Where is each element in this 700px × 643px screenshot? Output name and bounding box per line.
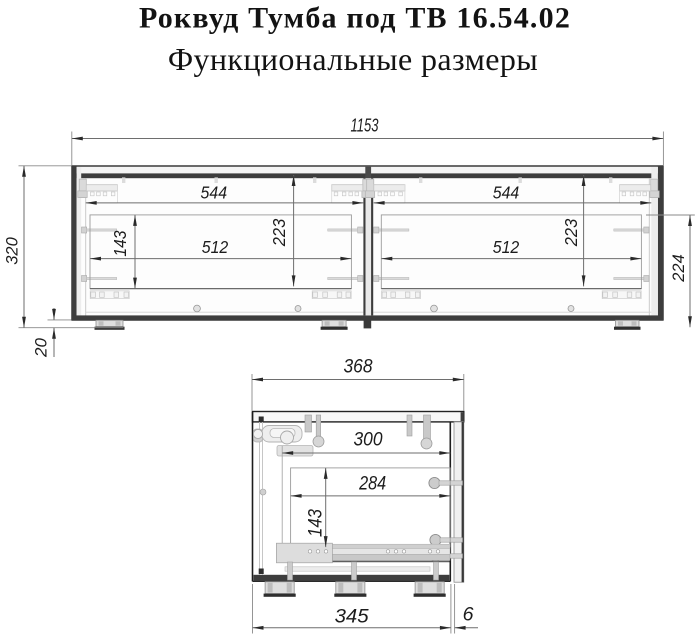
svg-text:Функциональные размеры: Функциональные размеры [168, 41, 538, 77]
svg-text:544: 544 [493, 182, 520, 202]
svg-text:512: 512 [202, 237, 229, 257]
svg-text:20: 20 [32, 338, 51, 358]
svg-text:300: 300 [354, 429, 383, 451]
svg-text:223: 223 [561, 219, 581, 248]
svg-text:Роквуд Тумба под ТВ 16.54.02: Роквуд Тумба под ТВ 16.54.02 [139, 2, 571, 35]
svg-text:143: 143 [110, 230, 130, 256]
svg-text:320: 320 [3, 237, 22, 265]
svg-text:143: 143 [305, 509, 327, 537]
svg-text:345: 345 [335, 606, 369, 628]
svg-text:6: 6 [463, 604, 474, 626]
svg-text:512: 512 [493, 237, 520, 257]
svg-text:368: 368 [344, 356, 373, 378]
svg-text:284: 284 [358, 473, 386, 495]
svg-text:1153: 1153 [351, 115, 379, 135]
svg-text:224: 224 [669, 254, 688, 282]
svg-text:544: 544 [201, 182, 228, 202]
svg-text:223: 223 [269, 219, 289, 248]
